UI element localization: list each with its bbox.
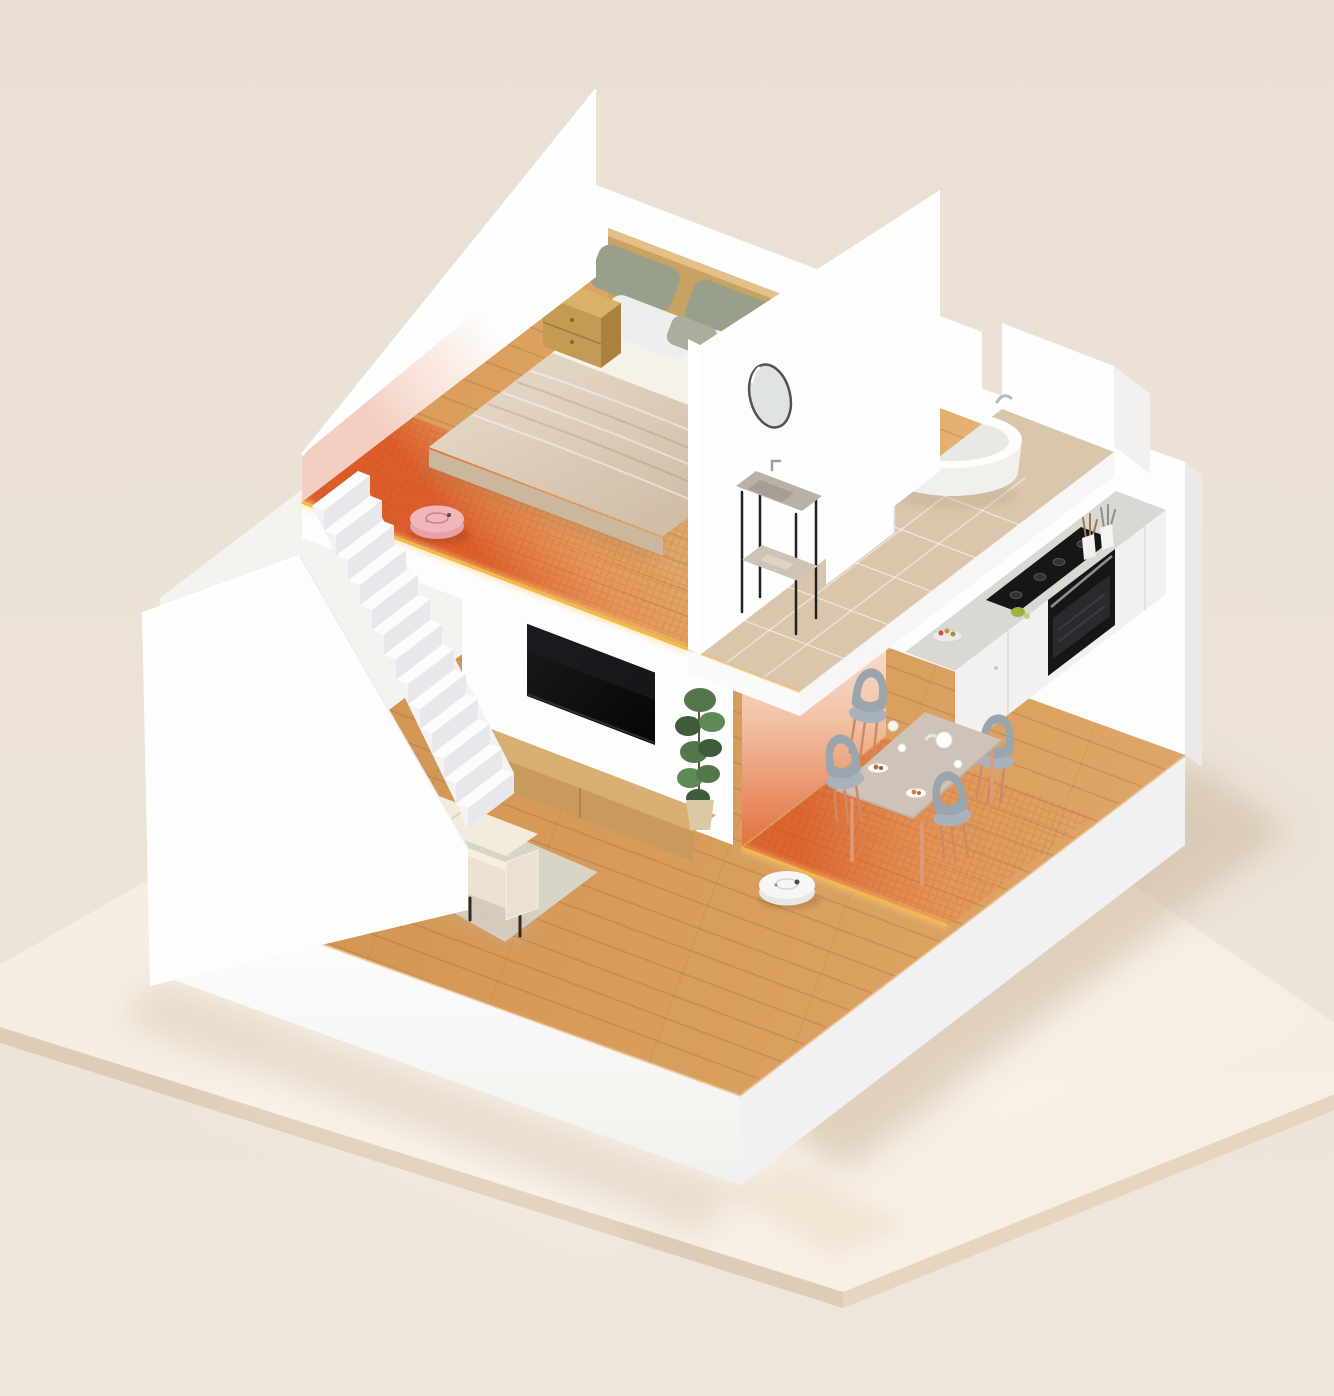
robot-upper-top [410,506,464,533]
robot-upper-lens [426,520,429,523]
render-stage: Isometric 3D cutaway render of a two-sto… [0,0,1334,1396]
robot-lower-top [759,871,815,899]
robot-upper-sensor [447,513,451,517]
wall-right-edge [1185,462,1202,767]
robot-lower-sensor [795,880,800,885]
isometric-house-render: Isometric 3D cutaway render of a two-sto… [0,0,1334,1396]
robot-lower-lens [775,884,778,887]
partition-front-edge [688,339,700,655]
teapot [936,732,952,748]
cabinet-handle [994,666,998,670]
sofa-arm-right [506,850,538,920]
plant-pot [686,800,714,830]
